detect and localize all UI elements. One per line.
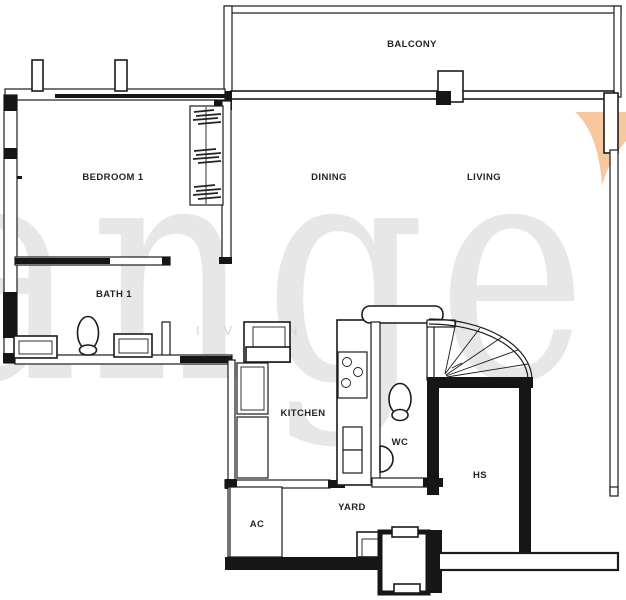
bedroom-top-wall-fill	[55, 94, 225, 98]
wc-basin-icon	[380, 446, 393, 472]
bottom-wall-left	[225, 557, 382, 570]
room-label-yard: YARD	[338, 502, 366, 513]
shower-tray-icon	[14, 336, 57, 358]
balcony-railing	[224, 6, 621, 97]
room-label-balcony: BALCONY	[387, 39, 437, 50]
vanity-sink-icon	[114, 334, 152, 357]
stove-icon	[337, 320, 375, 485]
wardrobe-icon	[190, 106, 223, 205]
exterior-wall-left	[3, 95, 22, 363]
room-label-bedroom1: BEDROOM 1	[82, 172, 143, 183]
room-label-kitchen: KITCHEN	[280, 408, 325, 419]
room-label-wc: WC	[392, 437, 409, 448]
floor-plan-svg: BALCONY BEDROOM 1 DINING LIVING BATH 1 K…	[0, 0, 626, 600]
exterior-wall-right	[604, 93, 618, 496]
room-label-living: LIVING	[467, 172, 501, 183]
kitchen-counter	[237, 363, 268, 478]
floor-plan-page: ange IVAN	[0, 0, 626, 600]
room-label-bath1: BATH 1	[96, 289, 132, 300]
balcony-door-icon	[436, 71, 463, 105]
room-label-ac: AC	[250, 519, 265, 530]
room-label-dining: DINING	[311, 172, 347, 183]
kitchen-sink-icon	[244, 322, 290, 362]
spiral-staircase-icon	[427, 319, 532, 380]
balcony-wall	[231, 91, 614, 99]
toilet-icon-bath	[78, 317, 99, 356]
wall-fins	[32, 60, 127, 91]
toilet-icon-wc	[389, 384, 411, 421]
room-label-hs: HS	[473, 470, 487, 481]
bottom-wall-right	[438, 553, 618, 570]
